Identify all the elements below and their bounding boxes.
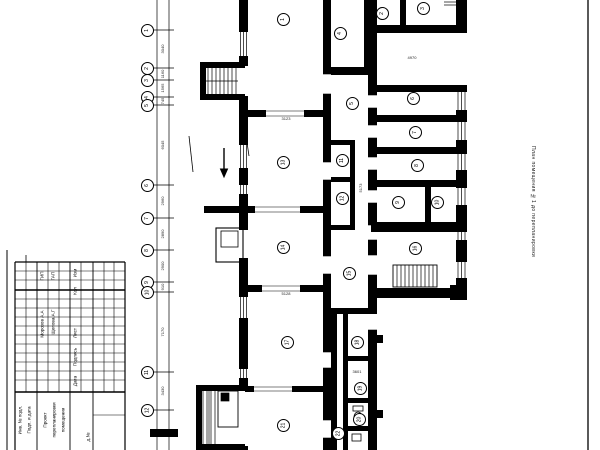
title-block-text: Лист bbox=[73, 328, 78, 338]
dimension-text: 2960 bbox=[161, 197, 165, 206]
room-number-circle: 2 bbox=[376, 7, 389, 20]
title-block-text: ГИП bbox=[40, 271, 45, 280]
dimension-text: 3123 bbox=[282, 117, 291, 121]
room-number-circle: 5 bbox=[346, 97, 359, 110]
room-number-circle: 4 bbox=[334, 27, 347, 40]
axis-circle: 12 bbox=[141, 404, 154, 417]
room-number-circle: 7 bbox=[409, 126, 422, 139]
dimension-text: 3601 bbox=[353, 370, 362, 374]
title-block-text: помещения bbox=[62, 408, 67, 433]
sheet-frame bbox=[7, 0, 588, 450]
dimension-text: 5173 bbox=[359, 184, 363, 193]
walls bbox=[150, 0, 467, 450]
room-number-circle: 8 bbox=[411, 159, 424, 172]
room-number-circle: 19 bbox=[354, 382, 367, 395]
axis-circle: 10 bbox=[141, 286, 154, 299]
axis-circle: 5 bbox=[141, 99, 154, 112]
room-number-circle: 17 bbox=[281, 336, 294, 349]
dimension-text: 7170 bbox=[161, 328, 165, 337]
room-number-circle: 13 bbox=[277, 156, 290, 169]
drawing-sheet: План помещения №1 до перепланировки 1234… bbox=[0, 0, 600, 450]
dimension-text: 910 bbox=[161, 284, 165, 291]
room-number-circle: 21 bbox=[277, 419, 290, 432]
dimension-text: 5128 bbox=[282, 292, 291, 296]
room-number-circle: 9 bbox=[392, 196, 405, 209]
title-block-text: перепланировки bbox=[53, 402, 58, 437]
title-block-text: Проект bbox=[44, 412, 49, 427]
room-number-circle: 18 bbox=[351, 336, 364, 349]
room-number-circle: 11 bbox=[336, 154, 349, 167]
axis-lines bbox=[153, 0, 174, 450]
title-block-text: Инв. № подл. bbox=[19, 406, 24, 435]
dimension-text: 1565 bbox=[161, 84, 165, 93]
title-block-text: Щепова А.Г bbox=[51, 310, 56, 335]
room-number-circle: 15 bbox=[343, 267, 356, 280]
floor-plan-drawing bbox=[0, 0, 600, 450]
title-block-text: Дата bbox=[73, 376, 78, 386]
room-number-circle: 16 bbox=[409, 242, 422, 255]
axis-circle: 8 bbox=[141, 244, 154, 257]
axis-circle: 7 bbox=[141, 212, 154, 225]
room-number-circle: 10 bbox=[431, 196, 444, 209]
axis-circle: 3 bbox=[141, 74, 154, 87]
title-block-text: Изм bbox=[73, 269, 78, 278]
title-block-text: ГАП bbox=[51, 272, 56, 281]
title-block-text: Подпись bbox=[73, 348, 78, 366]
dimension-text: 3430 bbox=[161, 387, 165, 396]
title-block-text: Кол bbox=[73, 287, 78, 295]
dimension-text: 2900 bbox=[161, 262, 165, 271]
room-number-circle: 14 bbox=[277, 241, 290, 254]
room-number-circle: 22 bbox=[332, 427, 345, 440]
room-number-circle: 20 bbox=[353, 413, 366, 426]
room-number-circle: 12 bbox=[336, 192, 349, 205]
plan-title-vertical-label: План помещения №1 до перепланировки bbox=[530, 146, 536, 346]
room-number-circle: 6 bbox=[407, 92, 420, 105]
dimension-text: 1160 bbox=[161, 70, 165, 79]
room-number-circle: 1 bbox=[277, 13, 290, 26]
balcony bbox=[216, 228, 243, 262]
dimension-text: 6045 bbox=[161, 141, 165, 150]
dimension-text: 3040 bbox=[161, 45, 165, 54]
title-block-text: Морозов А.А bbox=[40, 310, 45, 337]
dimension-text: 2890 bbox=[161, 230, 165, 239]
axis-circle: 6 bbox=[141, 179, 154, 192]
axis-circle: 11 bbox=[141, 366, 154, 379]
title-block-text: д.№ bbox=[87, 433, 92, 442]
room-number-circle: 3 bbox=[417, 2, 430, 15]
title-block-text: Подп. и дата bbox=[28, 406, 33, 433]
axis-circle: 1 bbox=[141, 24, 154, 37]
dimension-text: 745 bbox=[161, 98, 165, 105]
dimension-text: 4970 bbox=[408, 56, 417, 60]
